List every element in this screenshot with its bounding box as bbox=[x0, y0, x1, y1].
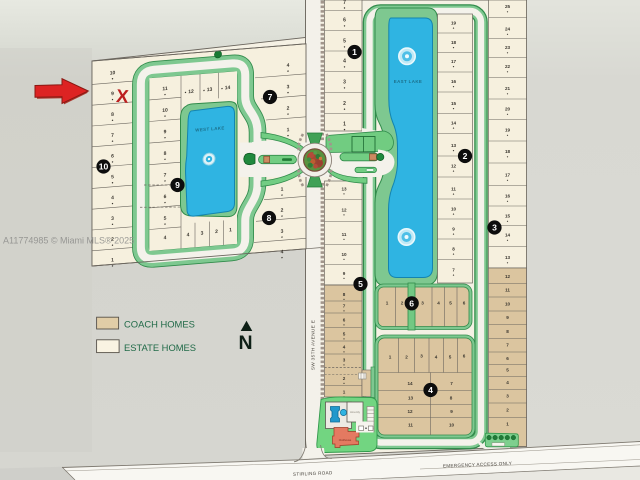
svg-text:13: 13 bbox=[341, 187, 347, 192]
svg-text:9: 9 bbox=[343, 271, 346, 276]
svg-text:4: 4 bbox=[164, 235, 167, 241]
svg-text:2: 2 bbox=[215, 229, 218, 235]
svg-text:1: 1 bbox=[281, 187, 284, 193]
svg-text:18: 18 bbox=[505, 149, 511, 154]
svg-text:14: 14 bbox=[505, 233, 511, 238]
svg-text:10: 10 bbox=[451, 207, 457, 212]
svg-text:14: 14 bbox=[451, 121, 457, 126]
svg-text:1: 1 bbox=[111, 257, 114, 263]
svg-text:5: 5 bbox=[506, 368, 509, 373]
svg-text:25: 25 bbox=[505, 4, 511, 9]
svg-text:5: 5 bbox=[358, 279, 363, 289]
svg-text:5: 5 bbox=[164, 216, 167, 222]
svg-text:1: 1 bbox=[389, 355, 392, 360]
svg-text:4: 4 bbox=[281, 249, 284, 255]
svg-text:23: 23 bbox=[505, 45, 511, 50]
svg-text:7: 7 bbox=[450, 381, 453, 386]
svg-text:Amenity: Amenity bbox=[350, 410, 361, 414]
svg-text:15: 15 bbox=[451, 101, 457, 106]
svg-text:4: 4 bbox=[187, 232, 190, 238]
svg-text:6: 6 bbox=[463, 354, 466, 359]
svg-text:ESTATE HOMES: ESTATE HOMES bbox=[124, 342, 196, 353]
svg-text:1: 1 bbox=[287, 127, 290, 133]
svg-text:20: 20 bbox=[505, 107, 511, 112]
svg-text:2: 2 bbox=[401, 301, 404, 306]
svg-text:COACH HOMES: COACH HOMES bbox=[124, 318, 195, 329]
svg-text:EAST LAKE: EAST LAKE bbox=[394, 79, 422, 84]
svg-text:8: 8 bbox=[506, 329, 509, 334]
svg-text:8: 8 bbox=[343, 292, 346, 297]
svg-text:1: 1 bbox=[386, 301, 389, 306]
svg-text:5: 5 bbox=[343, 39, 346, 45]
svg-text:2: 2 bbox=[343, 376, 346, 381]
svg-text:3: 3 bbox=[421, 301, 424, 306]
svg-text:4: 4 bbox=[287, 63, 290, 69]
svg-text:4: 4 bbox=[343, 345, 346, 350]
svg-text:11: 11 bbox=[342, 232, 347, 237]
svg-text:4: 4 bbox=[435, 355, 438, 360]
svg-text:18: 18 bbox=[451, 40, 457, 45]
svg-text:3: 3 bbox=[492, 223, 497, 233]
svg-text:24: 24 bbox=[505, 27, 511, 32]
svg-text:7: 7 bbox=[343, 0, 346, 6]
svg-text:9: 9 bbox=[175, 180, 180, 190]
svg-text:7: 7 bbox=[343, 304, 346, 309]
svg-text:10: 10 bbox=[449, 423, 455, 428]
svg-text:2: 2 bbox=[287, 106, 290, 112]
svg-text:16: 16 bbox=[451, 79, 457, 84]
svg-text:11: 11 bbox=[408, 423, 413, 428]
svg-text:12: 12 bbox=[451, 164, 457, 169]
svg-text:3: 3 bbox=[506, 394, 509, 399]
svg-text:X: X bbox=[115, 85, 130, 107]
svg-text:3: 3 bbox=[201, 231, 204, 237]
svg-text:22: 22 bbox=[505, 64, 511, 69]
svg-text:6: 6 bbox=[111, 153, 114, 159]
svg-text:2: 2 bbox=[506, 408, 509, 413]
svg-text:11: 11 bbox=[505, 288, 510, 293]
svg-text:10: 10 bbox=[162, 107, 168, 113]
svg-text:3: 3 bbox=[420, 354, 423, 359]
svg-text:2: 2 bbox=[343, 101, 346, 107]
svg-text:SW 35TH AVENUE E: SW 35TH AVENUE E bbox=[311, 320, 317, 371]
svg-text:1: 1 bbox=[343, 121, 346, 127]
svg-text:10: 10 bbox=[99, 162, 109, 172]
svg-text:6: 6 bbox=[463, 301, 466, 306]
svg-text:8: 8 bbox=[450, 396, 453, 401]
svg-text:17: 17 bbox=[451, 59, 457, 64]
svg-text:10: 10 bbox=[505, 302, 511, 307]
svg-text:9: 9 bbox=[450, 409, 453, 414]
svg-text:3: 3 bbox=[287, 84, 290, 90]
svg-text:2: 2 bbox=[463, 151, 468, 161]
svg-text:7: 7 bbox=[452, 268, 455, 273]
svg-text:19: 19 bbox=[451, 21, 457, 26]
svg-text:9: 9 bbox=[452, 227, 455, 232]
svg-text:A11774985 © Miami MLS® 2025: A11774985 © Miami MLS® 2025 bbox=[3, 236, 134, 246]
svg-text:8: 8 bbox=[111, 112, 114, 118]
svg-text:11: 11 bbox=[451, 187, 456, 192]
svg-text:6: 6 bbox=[343, 18, 346, 24]
svg-text:4: 4 bbox=[437, 301, 440, 306]
svg-text:7: 7 bbox=[111, 133, 114, 139]
svg-text:14: 14 bbox=[225, 85, 231, 91]
svg-text:6: 6 bbox=[343, 318, 346, 323]
svg-text:13: 13 bbox=[505, 255, 511, 260]
svg-text:13: 13 bbox=[451, 143, 457, 148]
svg-text:6: 6 bbox=[506, 356, 509, 361]
svg-text:3: 3 bbox=[343, 80, 346, 86]
svg-text:9: 9 bbox=[111, 91, 114, 97]
svg-text:12: 12 bbox=[407, 409, 413, 414]
svg-text:8: 8 bbox=[452, 247, 455, 252]
svg-text:8: 8 bbox=[164, 151, 167, 157]
svg-text:4: 4 bbox=[343, 59, 346, 65]
svg-text:4: 4 bbox=[428, 385, 433, 395]
svg-text:5: 5 bbox=[343, 332, 346, 337]
svg-text:15: 15 bbox=[505, 214, 511, 219]
svg-text:1: 1 bbox=[352, 47, 357, 57]
svg-text:4: 4 bbox=[111, 195, 114, 201]
svg-text:N: N bbox=[239, 332, 253, 354]
svg-text:9: 9 bbox=[164, 129, 167, 135]
svg-text:2: 2 bbox=[281, 208, 284, 214]
svg-text:9: 9 bbox=[506, 315, 509, 320]
svg-text:12: 12 bbox=[341, 208, 347, 213]
svg-text:4: 4 bbox=[506, 380, 509, 385]
svg-text:21: 21 bbox=[505, 86, 511, 91]
svg-text:1: 1 bbox=[506, 422, 509, 427]
svg-text:7: 7 bbox=[164, 172, 167, 178]
svg-text:5: 5 bbox=[449, 355, 452, 360]
svg-text:16: 16 bbox=[505, 194, 511, 199]
svg-text:10: 10 bbox=[110, 70, 116, 76]
svg-text:7: 7 bbox=[268, 92, 273, 102]
svg-text:14: 14 bbox=[407, 381, 413, 386]
svg-text:1: 1 bbox=[229, 227, 232, 233]
svg-text:11: 11 bbox=[162, 86, 167, 92]
svg-text:10: 10 bbox=[341, 252, 347, 257]
svg-text:17: 17 bbox=[505, 173, 511, 178]
svg-text:1: 1 bbox=[343, 390, 346, 395]
svg-text:3: 3 bbox=[111, 216, 114, 222]
svg-text:13: 13 bbox=[408, 396, 414, 401]
svg-text:6: 6 bbox=[164, 194, 167, 200]
svg-text:3: 3 bbox=[343, 358, 346, 363]
svg-text:6: 6 bbox=[409, 298, 414, 308]
svg-text:12: 12 bbox=[188, 89, 194, 95]
svg-text:7: 7 bbox=[506, 343, 509, 348]
svg-text:5: 5 bbox=[111, 174, 114, 180]
svg-text:Clubhouse: Clubhouse bbox=[339, 438, 352, 442]
svg-text:19: 19 bbox=[505, 128, 511, 133]
svg-text:13: 13 bbox=[207, 87, 213, 93]
svg-text:3: 3 bbox=[281, 229, 284, 235]
svg-text:5: 5 bbox=[449, 301, 452, 306]
svg-text:2: 2 bbox=[405, 355, 408, 360]
svg-text:8: 8 bbox=[267, 213, 272, 223]
svg-text:12: 12 bbox=[505, 274, 511, 279]
